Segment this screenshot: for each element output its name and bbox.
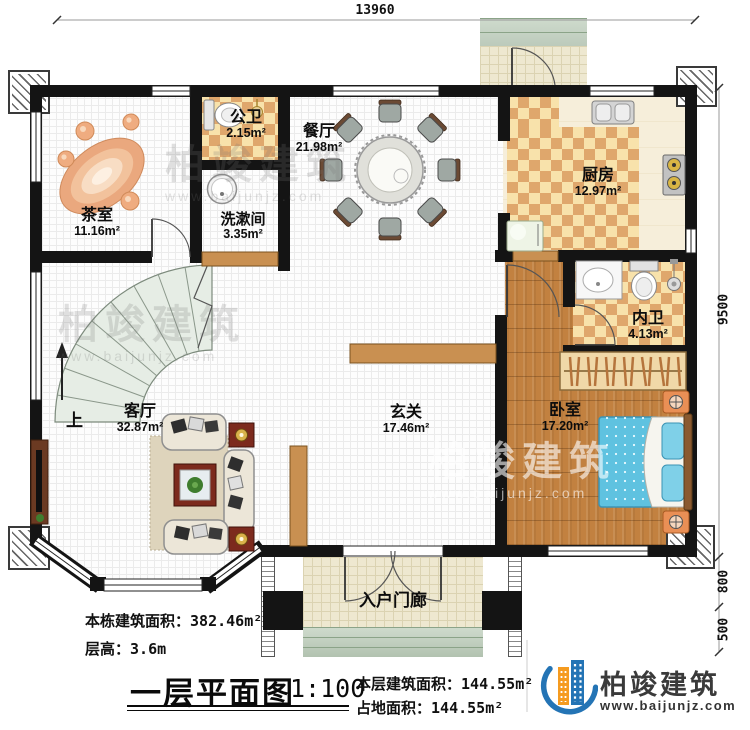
note-floor-area: 本层建筑面积：144.55m² xyxy=(356,673,533,694)
tv-cabinet xyxy=(31,440,48,524)
note-floor-height: 层高：3.6m xyxy=(85,638,166,659)
brand-logo-icon xyxy=(536,655,598,721)
note-building-total: 本栋建筑面积：382.46m² xyxy=(85,610,262,631)
brand-website: www.baijunjz.com xyxy=(600,698,736,713)
plan-scale: 1:100 xyxy=(290,674,365,703)
sofa-set xyxy=(150,414,254,554)
room-label-foyer: 玄关17.46m² xyxy=(383,405,430,435)
dimension-top-width: 13960 xyxy=(340,3,410,18)
stove xyxy=(663,155,685,195)
brand-company-name: 柏竣建筑 xyxy=(600,663,720,702)
room-label-entry-porch: 入户门廊 xyxy=(359,592,427,610)
room-label-dining-room: 餐厅21.98m² xyxy=(296,124,343,154)
room-label-bedroom: 卧室17.20m² xyxy=(542,403,589,433)
floor-plan-canvas: 柏竣建筑 www.baijunjz.com 柏竣建筑 www.baijunjz.… xyxy=(0,0,750,730)
dimension-right-steps: 500 xyxy=(717,600,732,660)
title-underline xyxy=(127,705,349,711)
room-label-living-room: 客厅32.87m² xyxy=(117,404,164,434)
bed xyxy=(599,414,692,510)
room-label-kitchen: 厨房12.97m² xyxy=(575,168,622,198)
wardrobe xyxy=(560,352,686,390)
inner-bath-sink xyxy=(576,261,622,299)
room-label-washroom: 洗漱间3.35m² xyxy=(220,212,265,241)
room-label-public-bath: 公卫2.15m² xyxy=(226,110,266,140)
room-label-inner-bath: 内卫4.13m² xyxy=(628,311,668,341)
washroom-sink xyxy=(208,175,237,204)
note-footprint: 占地面积：144.55m² xyxy=(356,697,503,718)
staircase xyxy=(55,264,212,422)
fridge xyxy=(507,221,543,251)
kitchen-sink xyxy=(592,101,634,124)
room-label-tea-room: 茶室11.16m² xyxy=(74,208,120,238)
dimension-right-main: 9500 xyxy=(717,280,732,340)
stairs-up-label: 上 xyxy=(66,406,83,431)
toilet-inner xyxy=(630,259,681,300)
dining-table xyxy=(320,100,460,240)
